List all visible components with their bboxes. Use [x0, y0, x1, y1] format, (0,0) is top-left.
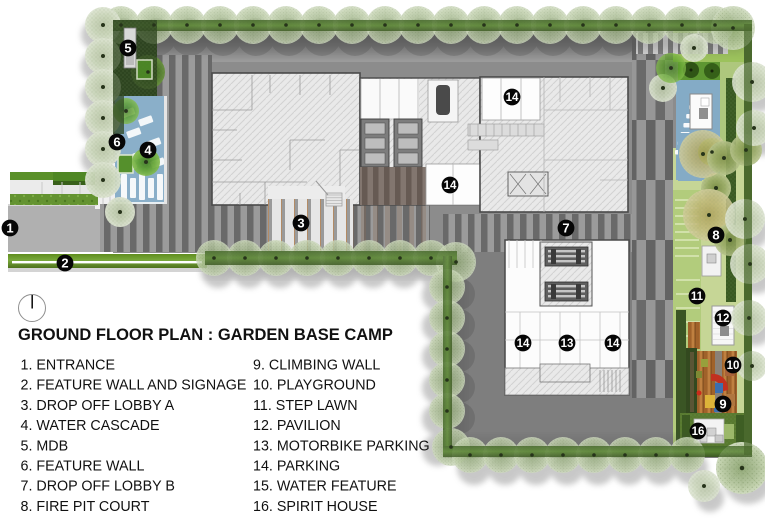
svg-text:8. FIRE PIT COURT: 8. FIRE PIT COURT	[21, 499, 150, 515]
svg-text:9. CLIMBING WALL: 9. CLIMBING WALL	[253, 358, 380, 374]
svg-text:3: 3	[297, 216, 304, 231]
svg-text:2. FEATURE WALL AND SIGNAGE: 2. FEATURE WALL AND SIGNAGE	[21, 378, 247, 394]
svg-text:14: 14	[517, 338, 530, 350]
svg-text:4: 4	[144, 143, 152, 158]
svg-text:14: 14	[506, 92, 519, 104]
svg-text:6. FEATURE WALL: 6. FEATURE WALL	[21, 459, 145, 475]
svg-text:6: 6	[113, 135, 120, 150]
svg-text:11. STEP LAWN: 11. STEP LAWN	[253, 398, 358, 414]
svg-text:GROUND FLOOR PLAN : GARDEN BAS: GROUND FLOOR PLAN : GARDEN BASE CAMP	[18, 326, 393, 344]
svg-text:12. PAVILION: 12. PAVILION	[253, 418, 341, 434]
svg-text:16: 16	[692, 426, 705, 438]
svg-text:13: 13	[561, 338, 574, 350]
svg-text:14: 14	[444, 180, 457, 192]
svg-text:15. WATER FEATURE: 15. WATER FEATURE	[253, 479, 397, 495]
svg-text:9: 9	[719, 397, 726, 412]
svg-text:14: 14	[607, 338, 620, 350]
svg-text:5. MDB: 5. MDB	[21, 438, 69, 454]
svg-text:14. PARKING: 14. PARKING	[253, 459, 340, 475]
svg-text:13. MOTORBIKE PARKING: 13. MOTORBIKE PARKING	[253, 438, 430, 454]
svg-text:1: 1	[6, 221, 13, 236]
svg-text:7. DROP OFF LOBBY B: 7. DROP OFF LOBBY B	[21, 479, 175, 495]
svg-text:4. WATER CASCADE: 4. WATER CASCADE	[21, 418, 160, 434]
svg-text:8: 8	[712, 228, 719, 243]
svg-text:16. SPIRIT HOUSE: 16. SPIRIT HOUSE	[253, 499, 377, 515]
svg-text:12: 12	[717, 313, 730, 325]
svg-text:1. ENTRANCE: 1. ENTRANCE	[21, 358, 116, 374]
svg-text:10. PLAYGROUND: 10. PLAYGROUND	[253, 378, 376, 394]
svg-text:5: 5	[124, 41, 131, 56]
svg-text:10: 10	[727, 360, 740, 372]
svg-text:2: 2	[61, 256, 68, 271]
svg-text:7: 7	[562, 221, 569, 236]
svg-text:3. DROP OFF LOBBY A: 3. DROP OFF LOBBY A	[21, 398, 175, 414]
svg-text:11: 11	[691, 291, 704, 303]
